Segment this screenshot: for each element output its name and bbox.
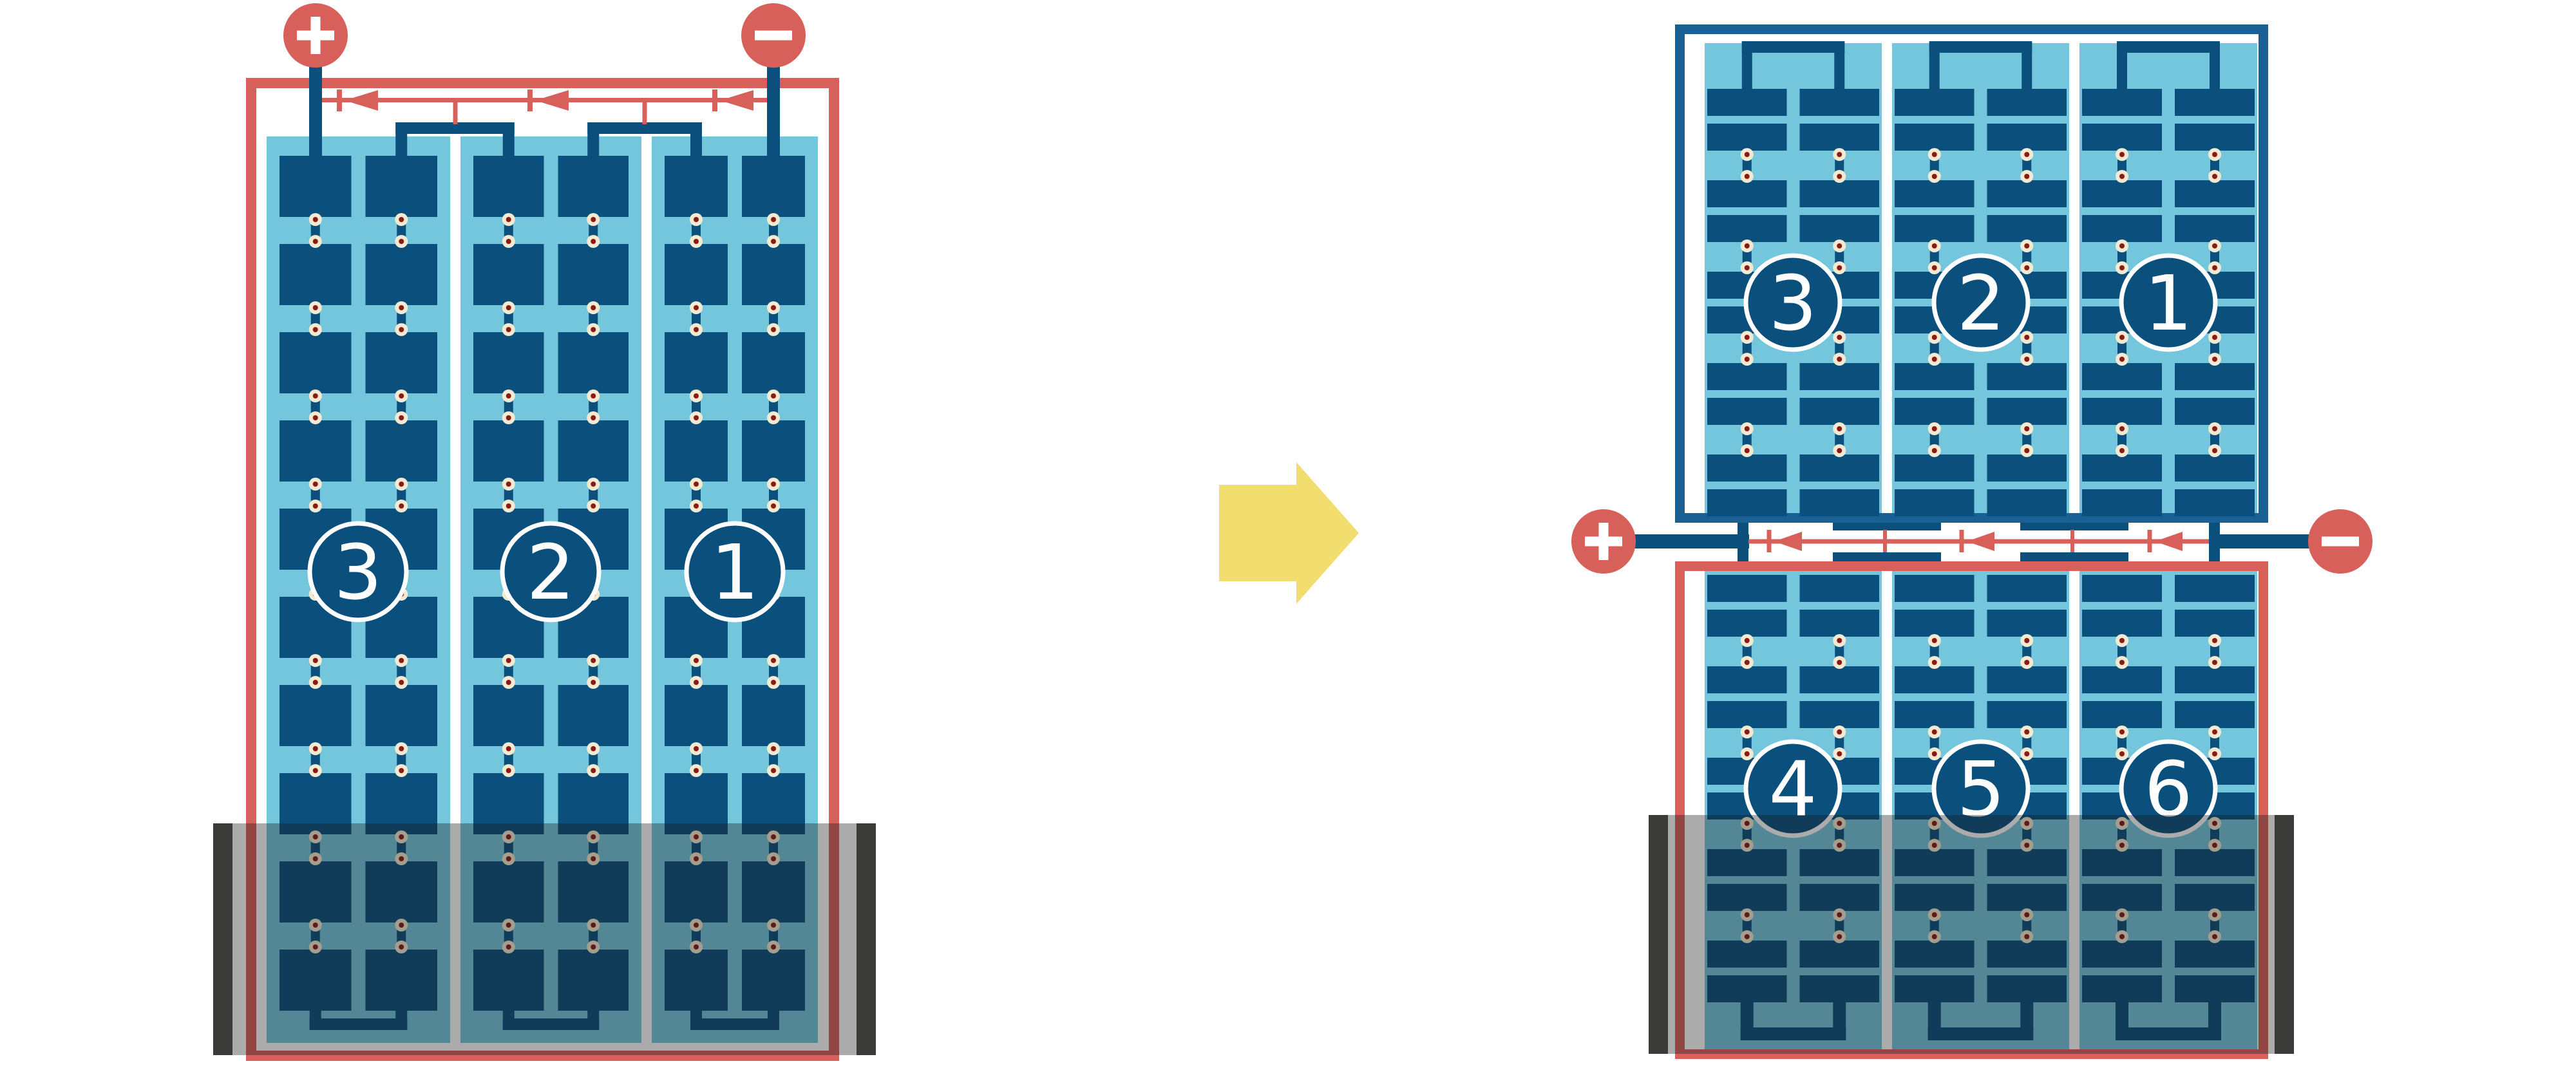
solar-half-cell [1707, 180, 1787, 207]
solder-point-icon [1837, 265, 1842, 270]
solder-point-icon [1932, 335, 1937, 340]
solar-half-cell [1895, 701, 1975, 728]
solar-half-cell [1707, 89, 1787, 116]
solder-point-icon [313, 239, 318, 244]
solder-point-icon [2119, 357, 2125, 362]
solder-point-icon [399, 768, 404, 773]
solar-half-cell [1895, 215, 1975, 242]
solar-half-cell [1987, 454, 2067, 482]
solar-half-cell [1707, 454, 1787, 482]
solder-point-icon [2119, 660, 2125, 665]
string-interconnect-tab [1833, 552, 1941, 561]
solar-half-cell [2175, 489, 2255, 516]
solder-point-icon [1837, 426, 1842, 431]
solar-half-cell [1707, 610, 1787, 637]
solar-half-cell [1987, 124, 2067, 151]
solder-point-icon [1837, 448, 1842, 453]
solder-point-icon [506, 305, 511, 310]
solder-point-icon [771, 658, 776, 663]
solar-half-cell [1895, 363, 1975, 390]
solder-point-icon [2119, 751, 2125, 756]
solder-point-icon [591, 680, 596, 685]
solar-half-cell [2082, 666, 2162, 693]
solder-point-icon [506, 327, 511, 332]
solar-half-cell [1987, 363, 2067, 390]
solar-cell [279, 332, 352, 393]
solar-half-cell [2175, 363, 2255, 390]
solar-cell [665, 685, 728, 746]
solar-cell [558, 332, 629, 393]
solder-point-icon [2119, 638, 2125, 643]
solder-point-icon [771, 680, 776, 685]
solder-point-icon [313, 327, 318, 332]
solar-half-cell [1800, 610, 1880, 637]
solder-point-icon [694, 482, 699, 487]
string-badge-right-2: 2 [1934, 256, 2028, 350]
solder-point-icon [399, 680, 404, 685]
solder-point-icon [1837, 152, 1842, 157]
solder-point-icon [771, 239, 776, 244]
solar-half-cell [1707, 124, 1787, 151]
solder-point-icon [2212, 729, 2217, 735]
solder-point-icon [506, 239, 511, 244]
solder-point-icon [2024, 243, 2029, 248]
solar-cell [366, 244, 438, 305]
solder-point-icon [399, 503, 404, 509]
string-number: 2 [1956, 259, 2005, 348]
string-bridge [395, 122, 407, 156]
solar-half-cell [1707, 489, 1787, 516]
solder-point-icon [591, 327, 596, 332]
solder-point-icon [506, 415, 511, 420]
solder-point-icon [313, 680, 318, 685]
solar-cell [366, 156, 438, 217]
solar-cell [665, 244, 728, 305]
solar-half-cell [1895, 489, 1975, 516]
solder-point-icon [2212, 265, 2217, 270]
solar-half-cell [1800, 398, 1880, 425]
solar-half-cell [1800, 454, 1880, 482]
solder-point-icon [1932, 426, 1937, 431]
shade-edge-bar [213, 823, 232, 1055]
solar-half-cell [2175, 454, 2255, 482]
solder-point-icon [399, 415, 404, 420]
solar-cell [366, 420, 438, 482]
string-number: 3 [1768, 259, 1817, 348]
solder-point-icon [771, 393, 776, 398]
solder-point-icon [399, 305, 404, 310]
shade-region [1649, 815, 2294, 1054]
solar-half-cell [1800, 180, 1880, 207]
solder-point-icon [1932, 660, 1937, 665]
solar-half-cell [2082, 89, 2162, 116]
solder-point-icon [399, 239, 404, 244]
solder-point-icon [694, 305, 699, 310]
solder-point-icon [1837, 660, 1842, 665]
solar-half-cell [2175, 398, 2255, 425]
solder-point-icon [2119, 174, 2125, 179]
solder-point-icon [2119, 243, 2125, 248]
solder-point-icon [694, 680, 699, 685]
solder-point-icon [2212, 660, 2217, 665]
solar-half-cell [1987, 666, 2067, 693]
solar-cell [665, 156, 728, 217]
solder-point-icon [1932, 729, 1937, 735]
solder-point-icon [1745, 265, 1750, 270]
solder-point-icon [591, 415, 596, 420]
string-number: 3 [334, 528, 382, 617]
solder-point-icon [771, 217, 776, 222]
solder-point-icon [2119, 448, 2125, 453]
solder-point-icon [771, 305, 776, 310]
solder-point-icon [694, 415, 699, 420]
solder-point-icon [1745, 357, 1750, 362]
solar-half-cell [2175, 666, 2255, 693]
solar-cell [742, 244, 805, 305]
solder-point-icon [1837, 243, 1842, 248]
solar-half-cell [1707, 701, 1787, 728]
solder-point-icon [1745, 243, 1750, 248]
solder-point-icon [1745, 335, 1750, 340]
solar-cell [366, 685, 438, 746]
solder-point-icon [2024, 152, 2029, 157]
solar-cell [742, 685, 805, 746]
solder-point-icon [694, 503, 699, 509]
solar-cell [473, 332, 544, 393]
solar-half-cell [2175, 180, 2255, 207]
string-badge-right-3: 3 [1746, 256, 1840, 350]
solar-cell [558, 420, 629, 482]
shade-region [213, 823, 876, 1055]
solar-cell [279, 685, 352, 746]
string-number: 1 [2144, 259, 2192, 348]
solder-point-icon [399, 217, 404, 222]
solder-point-icon [506, 503, 511, 509]
string-number: 2 [526, 528, 574, 617]
negative-terminal-icon: − [2308, 509, 2372, 574]
solar-half-cell [1987, 398, 2067, 425]
positive-terminal-wire [1634, 534, 1749, 548]
string-badge-left-1: 1 [687, 523, 783, 620]
solar-cell [473, 244, 544, 305]
solder-point-icon [313, 658, 318, 663]
shade-edge-bar [857, 823, 876, 1055]
solar-half-cell [1800, 124, 1880, 151]
solder-point-icon [2024, 426, 2029, 431]
right-panel-diagram: 3 2 1 4 5 6 + − [1571, 30, 2372, 1054]
negative-terminal-icon: − [741, 3, 806, 68]
solar-cell [742, 156, 805, 217]
shade-overlay [1649, 815, 2294, 1054]
solder-point-icon [1932, 638, 1937, 643]
string-u-connector [1742, 41, 1845, 53]
bypass-diode-bus [316, 89, 773, 124]
solder-point-icon [313, 503, 318, 509]
solder-point-icon [2119, 729, 2125, 735]
solar-half-cell [2082, 180, 2162, 207]
solder-point-icon [1745, 729, 1750, 735]
solar-half-cell [1987, 89, 2067, 116]
solar-half-cell [1895, 89, 1975, 116]
solder-point-icon [771, 768, 776, 773]
solder-point-icon [694, 327, 699, 332]
solar-half-cell [1987, 215, 2067, 242]
shade-edge-bar [2275, 815, 2294, 1054]
solder-point-icon [506, 658, 511, 663]
solar-half-cell [2082, 610, 2162, 637]
solder-point-icon [1932, 174, 1937, 179]
solar-half-cell [2082, 454, 2162, 482]
solder-point-icon [2119, 426, 2125, 431]
solar-cell [366, 332, 438, 393]
solder-point-icon [1745, 448, 1750, 453]
solar-half-cell [2175, 124, 2255, 151]
solder-point-icon [399, 482, 404, 487]
solder-point-icon [1837, 174, 1842, 179]
solar-half-cell [2082, 489, 2162, 516]
solar-half-cell [1895, 398, 1975, 425]
solar-half-cell [1707, 666, 1787, 693]
positive-terminal-icon: + [1571, 509, 1636, 574]
solar-half-cell [2175, 575, 2255, 602]
solar-cell [279, 420, 352, 482]
solder-point-icon [694, 658, 699, 663]
bypass-diode-bus [1748, 530, 2209, 552]
solar-half-cell [2082, 215, 2162, 242]
solar-half-cell [1800, 666, 1880, 693]
solar-cell [279, 156, 352, 217]
solder-point-icon [1932, 152, 1937, 157]
solder-point-icon [399, 393, 404, 398]
solder-point-icon [1932, 243, 1937, 248]
solder-point-icon [2212, 448, 2217, 453]
solar-cell [473, 685, 544, 746]
solder-point-icon [771, 415, 776, 420]
string-separator [2069, 43, 2079, 513]
solder-point-icon [399, 746, 404, 751]
solder-point-icon [2212, 335, 2217, 340]
solar-half-cell [1707, 575, 1787, 602]
solder-point-icon [2212, 243, 2217, 248]
string-u-connector [1929, 41, 2032, 53]
solar-half-cell [1895, 180, 1975, 207]
solar-half-cell [1987, 575, 2067, 602]
diode-tap [453, 100, 458, 124]
solar-half-cell [2082, 124, 2162, 151]
solar-half-cell [1987, 180, 2067, 207]
solar-cell [558, 156, 629, 217]
solder-point-icon [1932, 448, 1937, 453]
solder-point-icon [1837, 357, 1842, 362]
solder-point-icon [1745, 152, 1750, 157]
solder-point-icon [506, 482, 511, 487]
solder-point-icon [2024, 335, 2029, 340]
junction-end-bar [1738, 523, 1748, 561]
solder-point-icon [771, 503, 776, 509]
solder-point-icon [591, 217, 596, 222]
solder-point-icon [506, 217, 511, 222]
solar-half-cell [2082, 398, 2162, 425]
solar-half-cell [1800, 489, 1880, 516]
solder-point-icon [1745, 751, 1750, 756]
string-u-connector [1742, 41, 1752, 90]
shade-overlay [213, 823, 876, 1055]
diode-tap [643, 100, 647, 124]
solar-half-cell [1987, 489, 2067, 516]
solder-point-icon [694, 239, 699, 244]
solder-point-icon [2119, 265, 2125, 270]
solder-point-icon [694, 393, 699, 398]
solder-point-icon [313, 217, 318, 222]
solder-point-icon [1745, 174, 1750, 179]
solder-point-icon [506, 768, 511, 773]
junction-end-bar [2209, 523, 2220, 561]
solar-half-cell [1987, 701, 2067, 728]
solder-point-icon [2212, 426, 2217, 431]
solar-cell [558, 685, 629, 746]
shade-edge-bar [1649, 815, 1668, 1054]
string-interconnect-tab [2020, 523, 2128, 530]
negative-terminal-wire [2219, 534, 2309, 548]
solder-point-icon [2119, 152, 2125, 157]
solder-point-icon [399, 658, 404, 663]
string-u-connector [2117, 41, 2220, 53]
solar-panel-shading-diagram: 3 2 1 + − [0, 0, 2576, 1068]
solar-half-cell [2082, 363, 2162, 390]
junction-box [1634, 523, 2309, 561]
string-interconnect-tab [2020, 552, 2128, 561]
diode-tap [1883, 530, 1887, 552]
solder-point-icon [506, 393, 511, 398]
solder-point-icon [2212, 174, 2217, 179]
solder-point-icon [1837, 751, 1842, 756]
solder-point-icon [1837, 729, 1842, 735]
solar-half-cell [1987, 610, 2067, 637]
solar-cell [742, 332, 805, 393]
solar-half-cell [1800, 575, 1880, 602]
solder-point-icon [2212, 638, 2217, 643]
solder-point-icon [1932, 357, 1937, 362]
string-bridge [503, 122, 515, 156]
solder-point-icon [1837, 638, 1842, 643]
solar-half-cell [1895, 666, 1975, 693]
solder-point-icon [2212, 357, 2217, 362]
string-separator [1882, 43, 1892, 513]
solar-cell [665, 332, 728, 393]
solder-point-icon [2024, 660, 2029, 665]
solder-point-icon [399, 327, 404, 332]
solder-point-icon [694, 746, 699, 751]
solar-half-cell [2175, 89, 2255, 116]
solder-point-icon [2212, 152, 2217, 157]
solar-half-cell [1895, 124, 1975, 151]
solder-point-icon [506, 680, 511, 685]
solar-half-cell [2175, 610, 2255, 637]
solder-point-icon [1745, 638, 1750, 643]
diode-tap [2070, 530, 2074, 552]
string-badge-left-2: 2 [502, 523, 599, 620]
solar-half-cell [2082, 701, 2162, 728]
solar-half-cell [1895, 610, 1975, 637]
solder-point-icon [591, 768, 596, 773]
solar-half-cell [1707, 363, 1787, 390]
solder-point-icon [591, 658, 596, 663]
solder-point-icon [2024, 357, 2029, 362]
solder-point-icon [591, 482, 596, 487]
solder-point-icon [771, 327, 776, 332]
solder-point-icon [591, 746, 596, 751]
solar-half-cell [1800, 215, 1880, 242]
string-u-connector [1834, 41, 1844, 90]
solder-point-icon [1745, 426, 1750, 431]
solder-point-icon [694, 217, 699, 222]
solder-point-icon [2024, 448, 2029, 453]
solder-point-icon [313, 415, 318, 420]
solar-cell [665, 420, 728, 482]
transform-arrow-icon [1219, 462, 1359, 604]
solder-point-icon [2024, 638, 2029, 643]
solder-point-icon [591, 305, 596, 310]
solar-half-cell [2175, 215, 2255, 242]
solder-point-icon [2024, 265, 2029, 270]
solar-half-cell [1800, 89, 1880, 116]
solder-point-icon [771, 746, 776, 751]
string-interconnect-tab [1833, 523, 1941, 530]
solar-cell [742, 420, 805, 482]
solar-cell [473, 420, 544, 482]
string-u-connector [2117, 41, 2127, 90]
string-bridge [690, 122, 702, 156]
solder-point-icon [591, 239, 596, 244]
positive-terminal-icon: + [283, 3, 348, 68]
solar-cell [279, 244, 352, 305]
solder-point-icon [313, 746, 318, 751]
solder-point-icon [2119, 335, 2125, 340]
solder-point-icon [694, 768, 699, 773]
solar-half-cell [1707, 398, 1787, 425]
solder-point-icon [591, 393, 596, 398]
string-u-connector [2022, 41, 2032, 90]
solder-point-icon [313, 482, 318, 487]
solder-point-icon [313, 768, 318, 773]
solar-half-cell [1800, 701, 1880, 728]
string-badge-right-1: 1 [2121, 256, 2215, 350]
solder-point-icon [2212, 751, 2217, 756]
solar-half-cell [2082, 575, 2162, 602]
solder-point-icon [1932, 265, 1937, 270]
solder-point-icon [1745, 660, 1750, 665]
solar-cell [473, 156, 544, 217]
solder-point-icon [1932, 751, 1937, 756]
solder-point-icon [1837, 335, 1842, 340]
left-panel-diagram: 3 2 1 + − [213, 3, 876, 1056]
solar-half-cell [1707, 215, 1787, 242]
string-bridge [587, 122, 599, 156]
string-badge-left-3: 3 [310, 523, 406, 620]
solder-point-icon [313, 393, 318, 398]
solar-half-cell [1895, 575, 1975, 602]
solder-point-icon [591, 503, 596, 509]
solar-half-cell [1800, 363, 1880, 390]
solder-point-icon [2024, 729, 2029, 735]
solder-point-icon [771, 482, 776, 487]
string-u-connector [1929, 41, 1940, 90]
string-u-connector [2210, 41, 2220, 90]
solder-point-icon [313, 305, 318, 310]
solar-half-cell [1895, 454, 1975, 482]
solar-cell [558, 244, 629, 305]
solar-half-cell [2175, 701, 2255, 728]
